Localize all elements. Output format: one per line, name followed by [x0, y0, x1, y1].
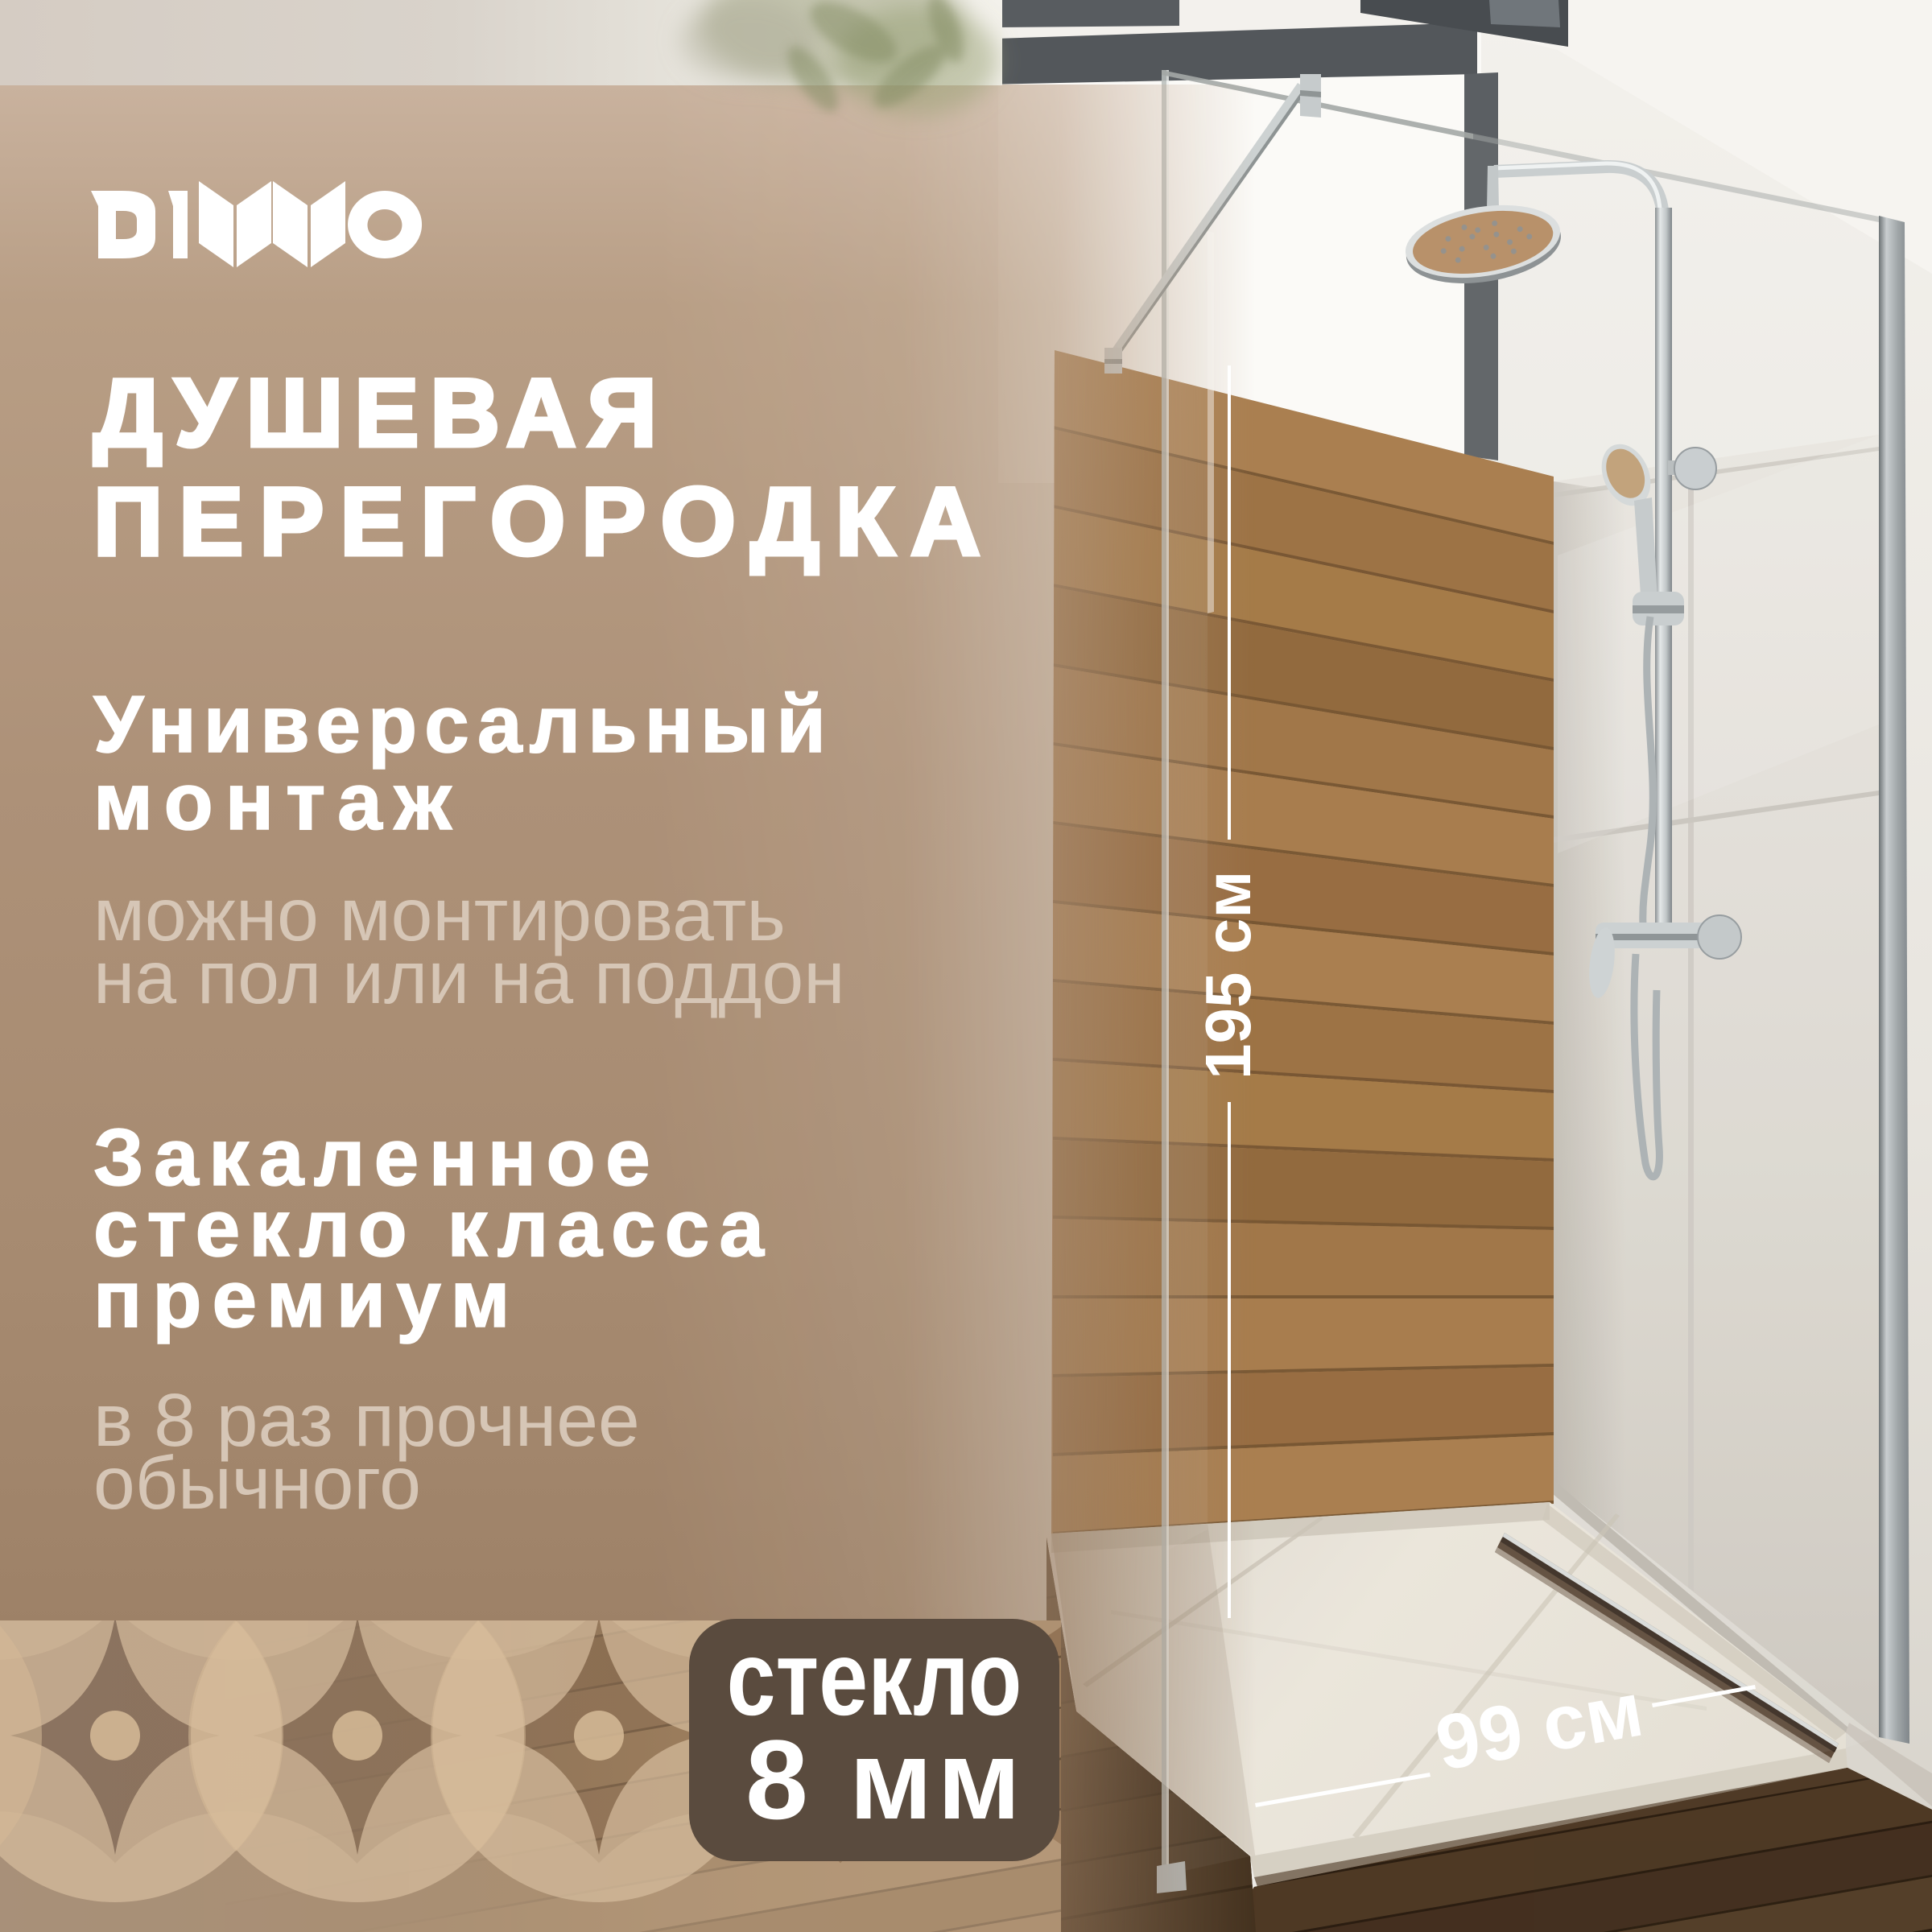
- svg-text:99 см: 99 см: [1430, 1666, 1649, 1787]
